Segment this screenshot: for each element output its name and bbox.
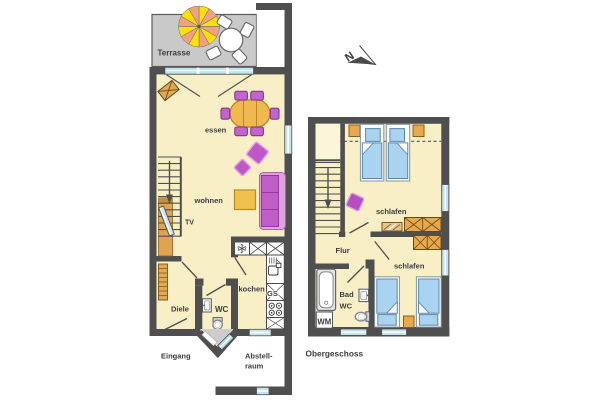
svg-text:Eingang: Eingang [161,351,191,360]
svg-text:Diele: Diele [171,305,189,314]
svg-text:WM: WM [317,318,331,327]
svg-text:Abstell-: Abstell- [245,351,273,360]
svg-text:kochen: kochen [239,285,266,294]
svg-text:schlafen: schlafen [376,207,407,216]
svg-text:GS: GS [267,289,278,298]
svg-text:WC: WC [340,302,353,311]
svg-text:essen: essen [205,126,227,135]
svg-text:raum: raum [245,362,264,371]
svg-text:WC: WC [215,305,229,314]
svg-text:Bad: Bad [340,290,355,299]
svg-text:Flur: Flur [336,246,350,255]
svg-text:Obergeschoss: Obergeschoss [306,349,364,359]
svg-text:wohnen: wohnen [194,196,224,205]
svg-text:Terrasse: Terrasse [158,49,191,58]
svg-text:TV: TV [185,220,194,227]
svg-text:schlafen: schlafen [394,262,425,271]
